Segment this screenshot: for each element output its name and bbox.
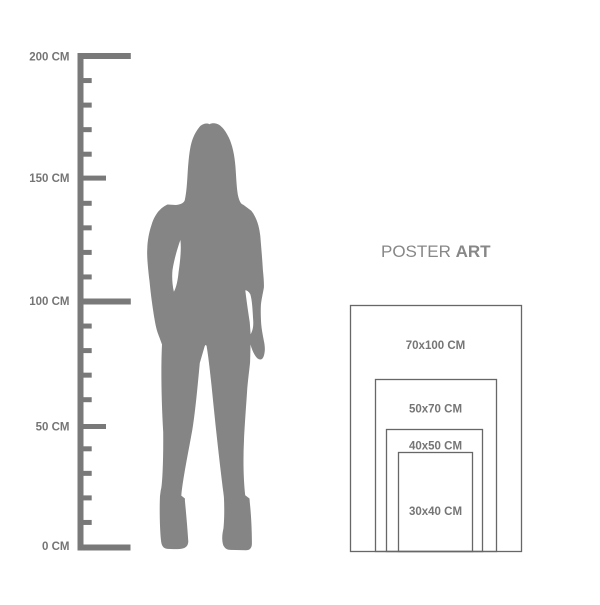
- svg-text:50x70 CM: 50x70 CM: [409, 404, 462, 416]
- svg-text:30x40 CM: 30x40 CM: [409, 506, 462, 518]
- svg-text:200 CM: 200 CM: [29, 51, 69, 63]
- svg-text:100 CM: 100 CM: [29, 296, 69, 308]
- svg-text:POSTER ART: POSTER ART: [381, 242, 491, 261]
- svg-text:50 CM: 50 CM: [36, 421, 70, 433]
- svg-text:0 CM: 0 CM: [42, 541, 69, 553]
- svg-text:150 CM: 150 CM: [29, 173, 69, 185]
- svg-text:40x50 CM: 40x50 CM: [409, 441, 462, 453]
- svg-text:70x100 CM: 70x100 CM: [406, 340, 465, 352]
